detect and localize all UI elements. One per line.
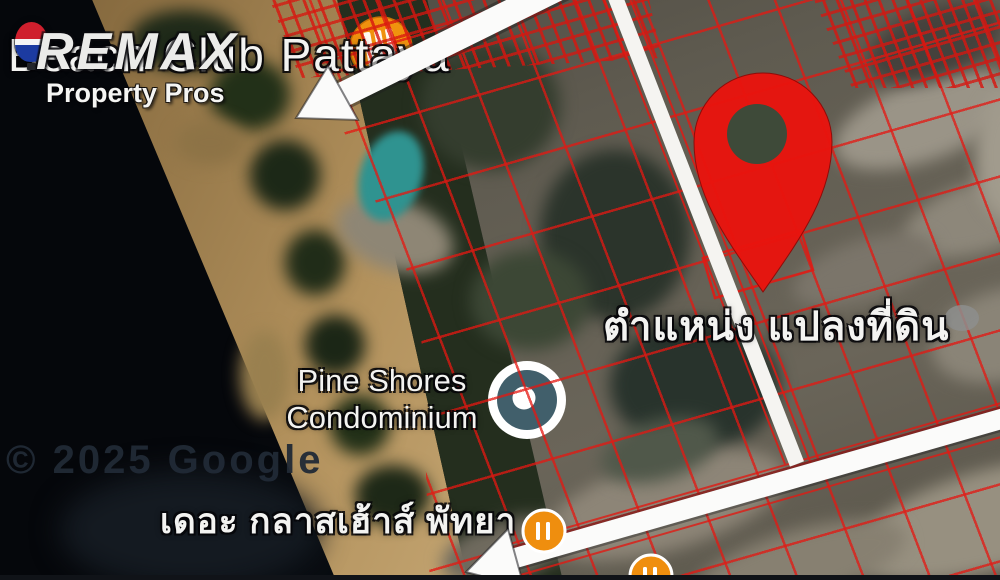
- direction-arrow-icon: [466, 415, 1000, 580]
- balloon-basket: [27, 63, 36, 70]
- image-bottom-edge: [0, 575, 1000, 580]
- brand-name: REMAX: [36, 22, 239, 82]
- map-image: Beach Club Pattaya ตำแหน่ง แปลงที่ดิน Pi…: [0, 0, 1000, 580]
- restaurant-icon: [523, 510, 565, 552]
- direction-arrow-icon: [296, 0, 585, 120]
- brand-tagline: Property Pros: [46, 78, 225, 109]
